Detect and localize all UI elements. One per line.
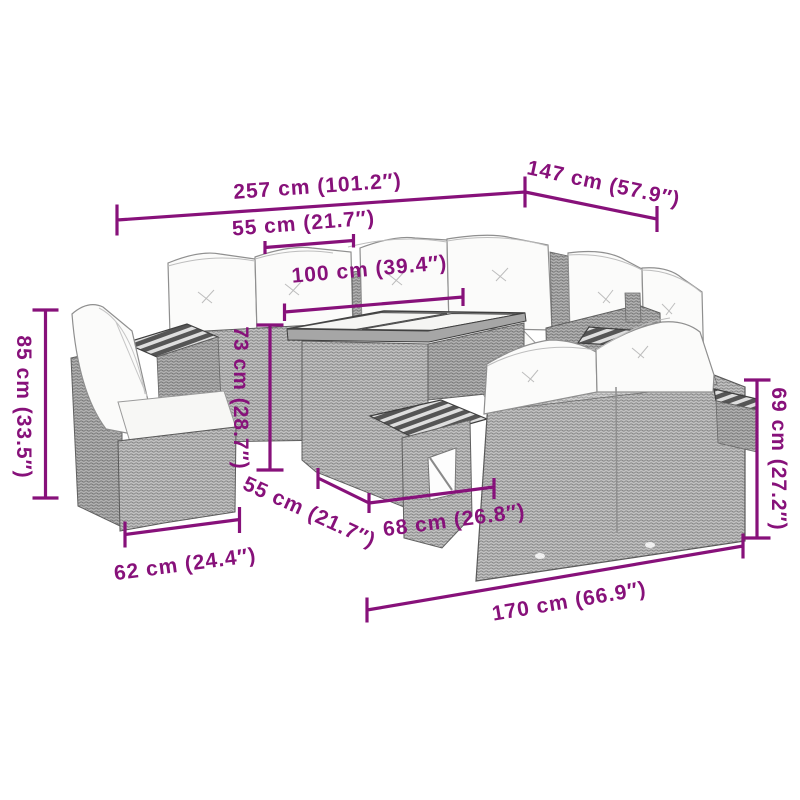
- svg-text:85 cm (33.5″): 85 cm (33.5″): [12, 335, 35, 478]
- svg-text:73 cm (28.7″): 73 cm (28.7″): [229, 326, 252, 469]
- svg-text:69 cm (27.2″): 69 cm (27.2″): [767, 387, 790, 530]
